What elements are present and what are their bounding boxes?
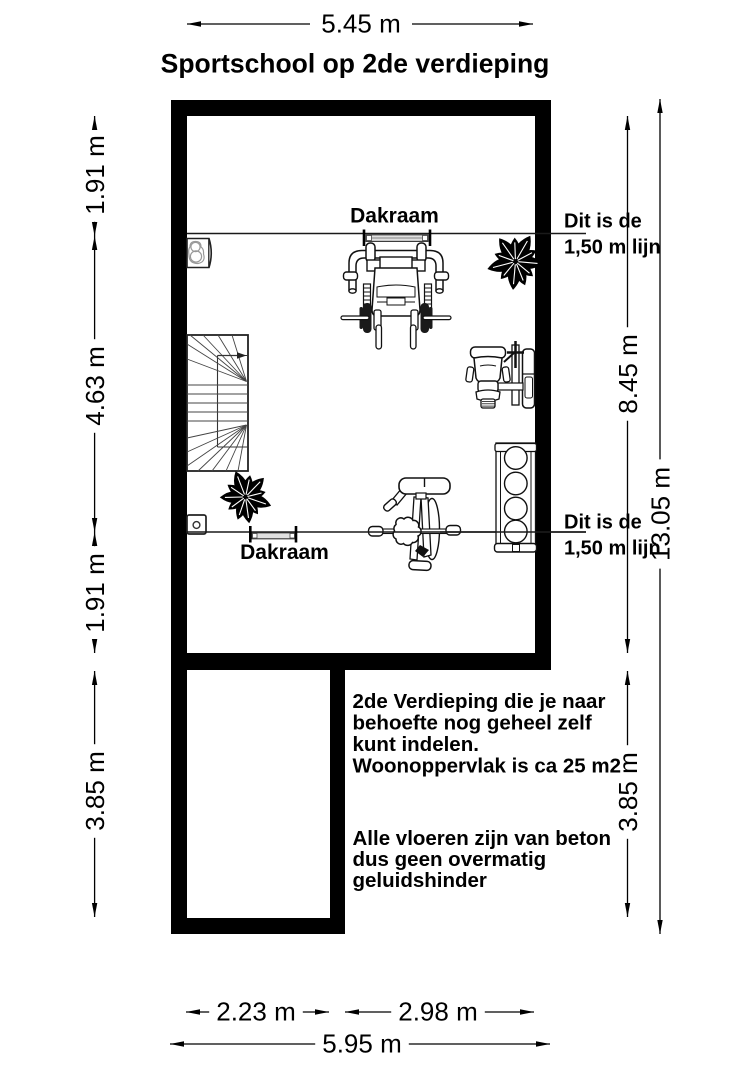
svg-text:1,50 m lijn: 1,50 m lijn [564, 538, 661, 560]
svg-text:1.91 m: 1.91 m [80, 553, 110, 633]
svg-text:1.91 m: 1.91 m [80, 135, 110, 215]
svg-text:Dakraam: Dakraam [350, 205, 439, 228]
svg-text:3.85 m: 3.85 m [80, 751, 110, 831]
svg-text:2.23 m: 2.23 m [216, 997, 296, 1027]
svg-text:Woonoppervlak is ca 25 m2: Woonoppervlak is ca 25 m2 [353, 755, 622, 778]
svg-text:5.95 m: 5.95 m [322, 1029, 402, 1059]
svg-text:4.63 m: 4.63 m [80, 346, 110, 426]
svg-text:Dit is de: Dit is de [564, 211, 642, 233]
svg-text:Alle vloeren zijn van beton: Alle vloeren zijn van beton [353, 827, 612, 850]
svg-text:8.45 m: 8.45 m [613, 334, 643, 414]
svg-text:2.98 m: 2.98 m [398, 997, 478, 1027]
svg-text:Dit is de: Dit is de [564, 512, 642, 534]
svg-text:5.45 m: 5.45 m [321, 9, 401, 39]
svg-text:behoefte nog geheel zelf: behoefte nog geheel zelf [353, 712, 592, 735]
svg-text:dus geen overmatig: dus geen overmatig [353, 848, 547, 871]
svg-text:geluidshinder: geluidshinder [353, 869, 487, 892]
svg-text:Dakraam: Dakraam [240, 541, 329, 564]
svg-text:Sportschool op 2de verdieping: Sportschool op 2de verdieping [161, 49, 550, 79]
svg-text:kunt indelen.: kunt indelen. [353, 733, 479, 756]
svg-text:2de Verdieping die je naar: 2de Verdieping die je naar [353, 690, 606, 713]
svg-text:1,50 m lijn: 1,50 m lijn [564, 237, 661, 259]
